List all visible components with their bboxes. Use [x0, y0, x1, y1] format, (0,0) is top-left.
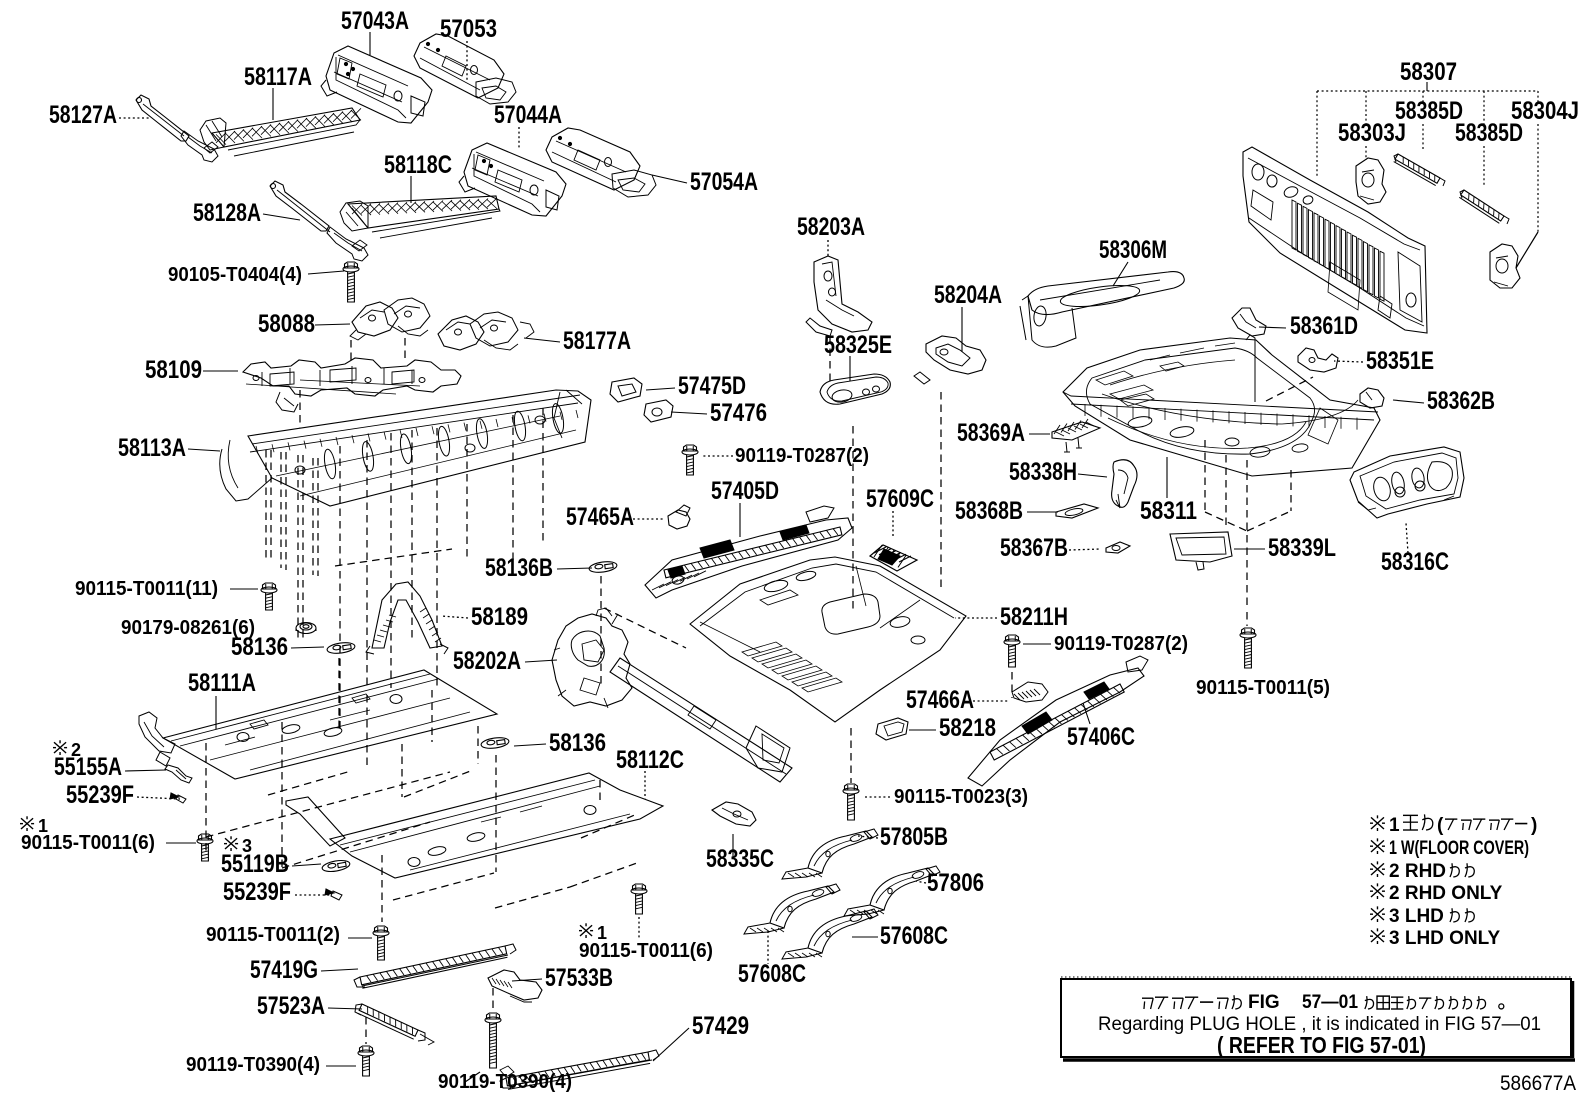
- svg-text:2: 2: [71, 740, 81, 760]
- svg-text:90119-T0287(2): 90119-T0287(2): [1054, 633, 1188, 655]
- svg-text:58111A: 58111A: [188, 669, 256, 697]
- svg-text:57475D: 57475D: [678, 372, 746, 400]
- svg-text:57465A: 57465A: [566, 503, 634, 531]
- svg-text:57806: 57806: [927, 869, 984, 897]
- svg-text:57429: 57429: [692, 1012, 749, 1040]
- svg-text:58338H: 58338H: [1009, 458, 1077, 486]
- svg-text:90115-T0011(2): 90115-T0011(2): [206, 924, 340, 946]
- svg-text:1 W(FLOOR COVER): 1 W(FLOOR COVER): [1389, 838, 1529, 859]
- svg-text:90119-T0390(4): 90119-T0390(4): [186, 1054, 320, 1076]
- svg-text:58127A: 58127A: [49, 101, 117, 129]
- svg-text:58369A: 58369A: [957, 419, 1025, 447]
- svg-text:90115-T0011(6): 90115-T0011(6): [579, 940, 713, 962]
- svg-text:90115-T0011(11): 90115-T0011(11): [75, 578, 218, 600]
- svg-text:57043A: 57043A: [341, 7, 409, 35]
- svg-text:57523A: 57523A: [257, 992, 325, 1020]
- svg-text:58316C: 58316C: [1381, 548, 1449, 576]
- svg-text:3 LHD ONLY: 3 LHD ONLY: [1389, 928, 1501, 949]
- svg-text:58335C: 58335C: [706, 845, 774, 873]
- svg-text:3 LHD: 3 LHD: [1389, 906, 1444, 927]
- svg-text:586677A: 586677A: [1500, 1072, 1576, 1095]
- svg-text:57608C: 57608C: [738, 960, 806, 988]
- svg-text:58112C: 58112C: [616, 746, 684, 774]
- svg-text:90115-T0023(3): 90115-T0023(3): [894, 786, 1028, 808]
- svg-text:58088: 58088: [258, 310, 315, 338]
- svg-text:58339L: 58339L: [1268, 534, 1336, 562]
- svg-text:58303J: 58303J: [1338, 119, 1406, 147]
- svg-text:58368B: 58368B: [955, 497, 1023, 525]
- svg-text:1: 1: [1389, 815, 1400, 836]
- svg-text:57053: 57053: [440, 15, 497, 43]
- svg-text:55155A: 55155A: [54, 753, 122, 781]
- svg-text:57608C: 57608C: [880, 922, 948, 950]
- svg-text:57533B: 57533B: [545, 964, 613, 992]
- svg-text:57405D: 57405D: [711, 477, 779, 505]
- svg-text:57466A: 57466A: [906, 686, 974, 714]
- svg-text:58218: 58218: [939, 714, 996, 742]
- svg-text:58113A: 58113A: [118, 434, 186, 462]
- svg-text:58385D: 58385D: [1455, 119, 1523, 147]
- svg-text:57054A: 57054A: [690, 168, 758, 196]
- svg-text:58136B: 58136B: [485, 554, 553, 582]
- svg-text:1: 1: [38, 816, 48, 836]
- svg-text:2 RHD ONLY: 2 RHD ONLY: [1389, 883, 1503, 904]
- svg-text:57609C: 57609C: [866, 485, 934, 513]
- svg-text:58307: 58307: [1400, 58, 1457, 86]
- svg-text:90179-08261(6): 90179-08261(6): [121, 617, 255, 639]
- svg-text:58325E: 58325E: [824, 331, 892, 359]
- svg-text:57805B: 57805B: [880, 823, 948, 851]
- svg-text:58128A: 58128A: [193, 199, 261, 227]
- svg-text:90105-T0404(4): 90105-T0404(4): [168, 264, 302, 286]
- svg-text:58189: 58189: [471, 603, 528, 631]
- svg-text:57—01: 57—01: [1302, 992, 1358, 1013]
- svg-text:90119-T0287(2): 90119-T0287(2): [735, 445, 869, 467]
- svg-text:90115-T0011(5): 90115-T0011(5): [1196, 677, 1330, 699]
- svg-text:58351E: 58351E: [1366, 347, 1434, 375]
- svg-text:1: 1: [597, 923, 607, 943]
- svg-text:58118C: 58118C: [384, 151, 452, 179]
- svg-text:58202A: 58202A: [453, 647, 521, 675]
- svg-text:FIG: FIG: [1248, 992, 1280, 1013]
- svg-text:58211H: 58211H: [1000, 603, 1068, 631]
- svg-text:90119-T0390(4): 90119-T0390(4): [438, 1071, 572, 1093]
- svg-text:): ): [1531, 815, 1537, 836]
- svg-text:58362B: 58362B: [1427, 387, 1495, 415]
- svg-text:3: 3: [242, 836, 252, 856]
- svg-text:58361D: 58361D: [1290, 312, 1358, 340]
- svg-text:2 RHD: 2 RHD: [1389, 861, 1446, 882]
- svg-text:58204A: 58204A: [934, 281, 1002, 309]
- svg-text:58109: 58109: [145, 356, 202, 384]
- svg-text:(: (: [1437, 815, 1444, 836]
- svg-text:58306M: 58306M: [1099, 236, 1167, 264]
- svg-text:57406C: 57406C: [1067, 723, 1135, 751]
- svg-text:58177A: 58177A: [563, 327, 631, 355]
- svg-text:57044A: 57044A: [494, 101, 562, 129]
- svg-text:( REFER TO FIG 57-01): ( REFER TO FIG 57-01): [1217, 1032, 1426, 1058]
- svg-text:55239F: 55239F: [66, 781, 134, 809]
- svg-text:58311: 58311: [1140, 497, 1197, 525]
- svg-text:58203A: 58203A: [797, 213, 865, 241]
- svg-text:57476: 57476: [710, 399, 767, 427]
- svg-text:57419G: 57419G: [250, 956, 318, 984]
- svg-text:55239F: 55239F: [223, 878, 291, 906]
- svg-text:55119B: 55119B: [221, 850, 289, 878]
- svg-text:58136: 58136: [549, 729, 606, 757]
- svg-text:58117A: 58117A: [244, 63, 312, 91]
- svg-text:58367B: 58367B: [1000, 534, 1068, 562]
